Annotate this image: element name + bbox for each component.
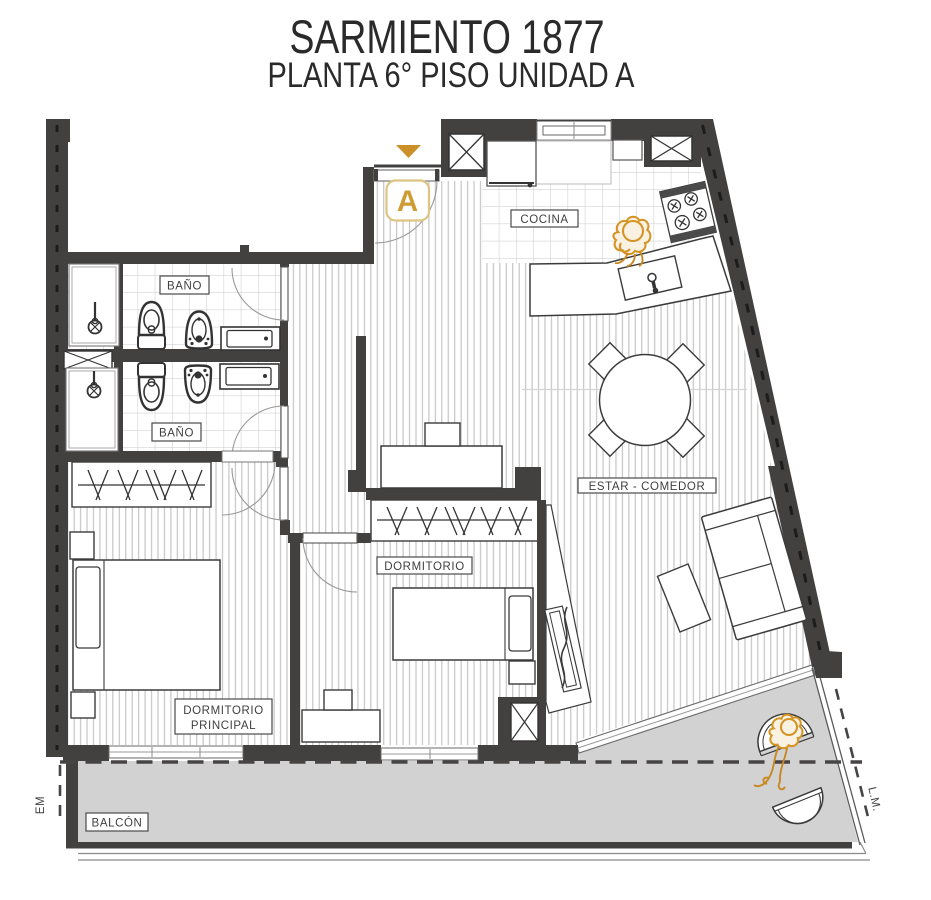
svg-text:BALCÓN: BALCÓN [92, 817, 143, 830]
svg-text:DORMITORIO: DORMITORIO [384, 561, 465, 573]
svg-text:ESTAR - COMEDOR: ESTAR - COMEDOR [589, 481, 706, 493]
svg-text:PLANTA 6° PISO UNIDAD A: PLANTA 6° PISO UNIDAD A [268, 56, 636, 95]
svg-text:COCINA: COCINA [520, 214, 568, 226]
svg-text:A: A [397, 185, 418, 218]
svg-text:PRINCIPAL: PRINCIPAL [191, 720, 256, 732]
svg-text:EM: EM [35, 796, 47, 814]
svg-text:DORMITORIO: DORMITORIO [183, 705, 264, 717]
svg-text:BAÑO: BAÑO [159, 427, 194, 440]
svg-text:BAÑO: BAÑO [167, 280, 202, 293]
